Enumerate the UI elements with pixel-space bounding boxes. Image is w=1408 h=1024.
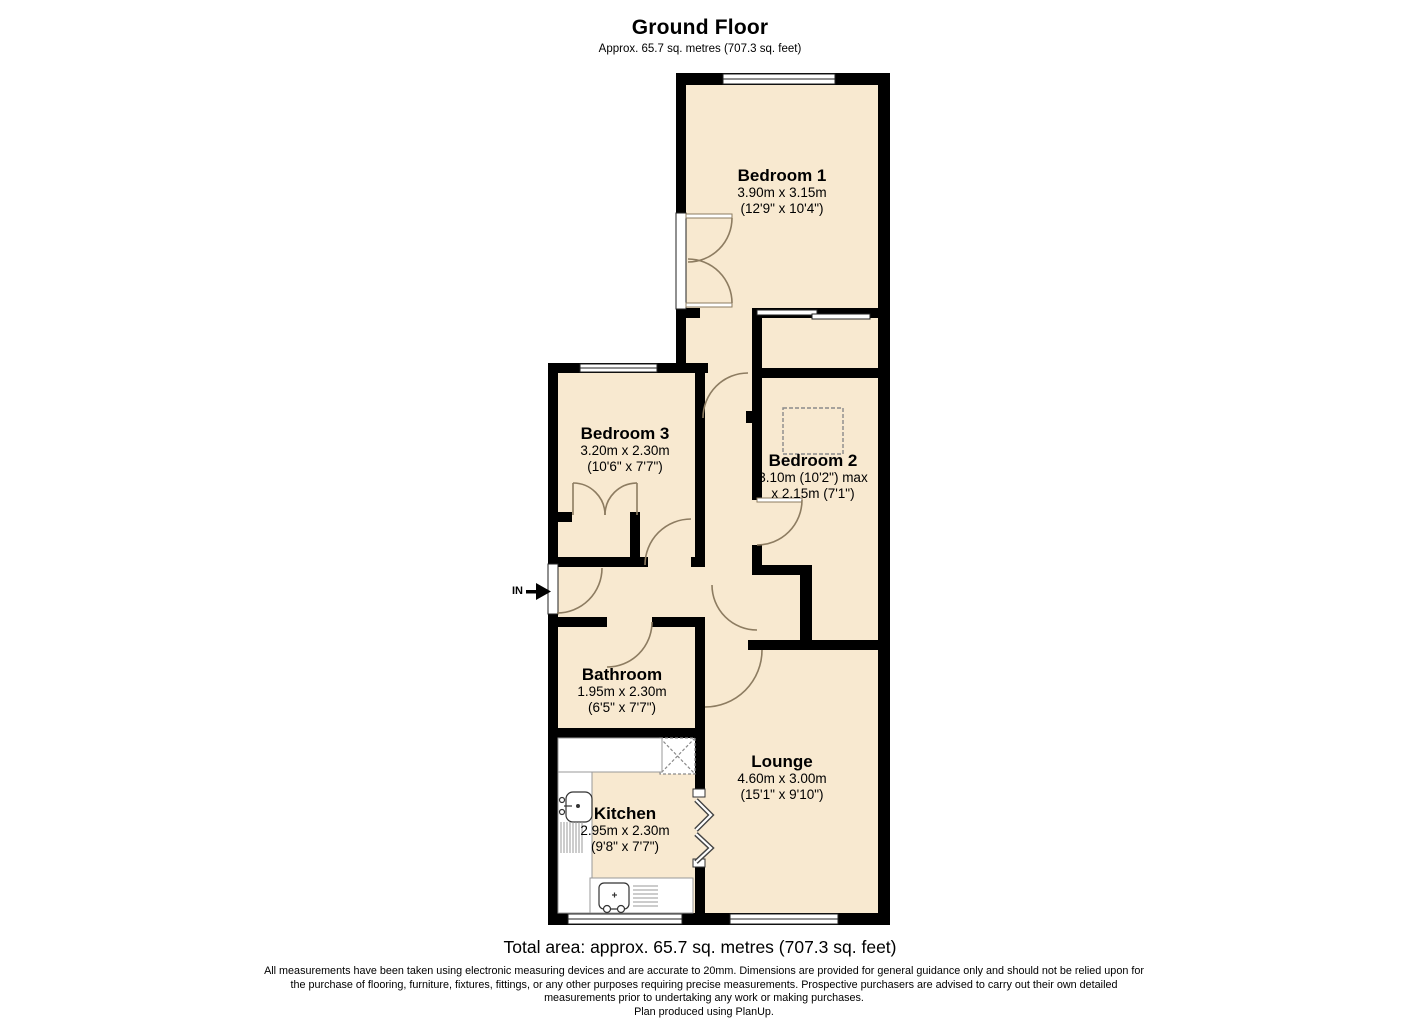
appliance-box-icon — [660, 738, 695, 774]
floorplan-drawing — [0, 0, 1408, 1024]
room-floors — [558, 85, 878, 913]
floorplan-page: Ground Floor Approx. 65.7 sq. metres (70… — [0, 0, 1408, 1024]
disclaimer-line: All measurements have been taken using e… — [240, 965, 1168, 979]
cooker-icon — [599, 883, 629, 913]
disclaimer-line: measurements prior to undertaking any wo… — [240, 992, 1168, 1006]
entrance-arrow-icon — [526, 583, 551, 600]
plan-credit: Plan produced using PlanUp. — [240, 1006, 1168, 1020]
disclaimer-block: All measurements have been taken using e… — [240, 965, 1168, 1019]
disclaimer-line: the purchase of flooring, furniture, fix… — [240, 979, 1168, 993]
entrance-label: IN — [512, 585, 523, 597]
total-area-text: Total area: approx. 65.7 sq. metres (707… — [300, 937, 1100, 958]
